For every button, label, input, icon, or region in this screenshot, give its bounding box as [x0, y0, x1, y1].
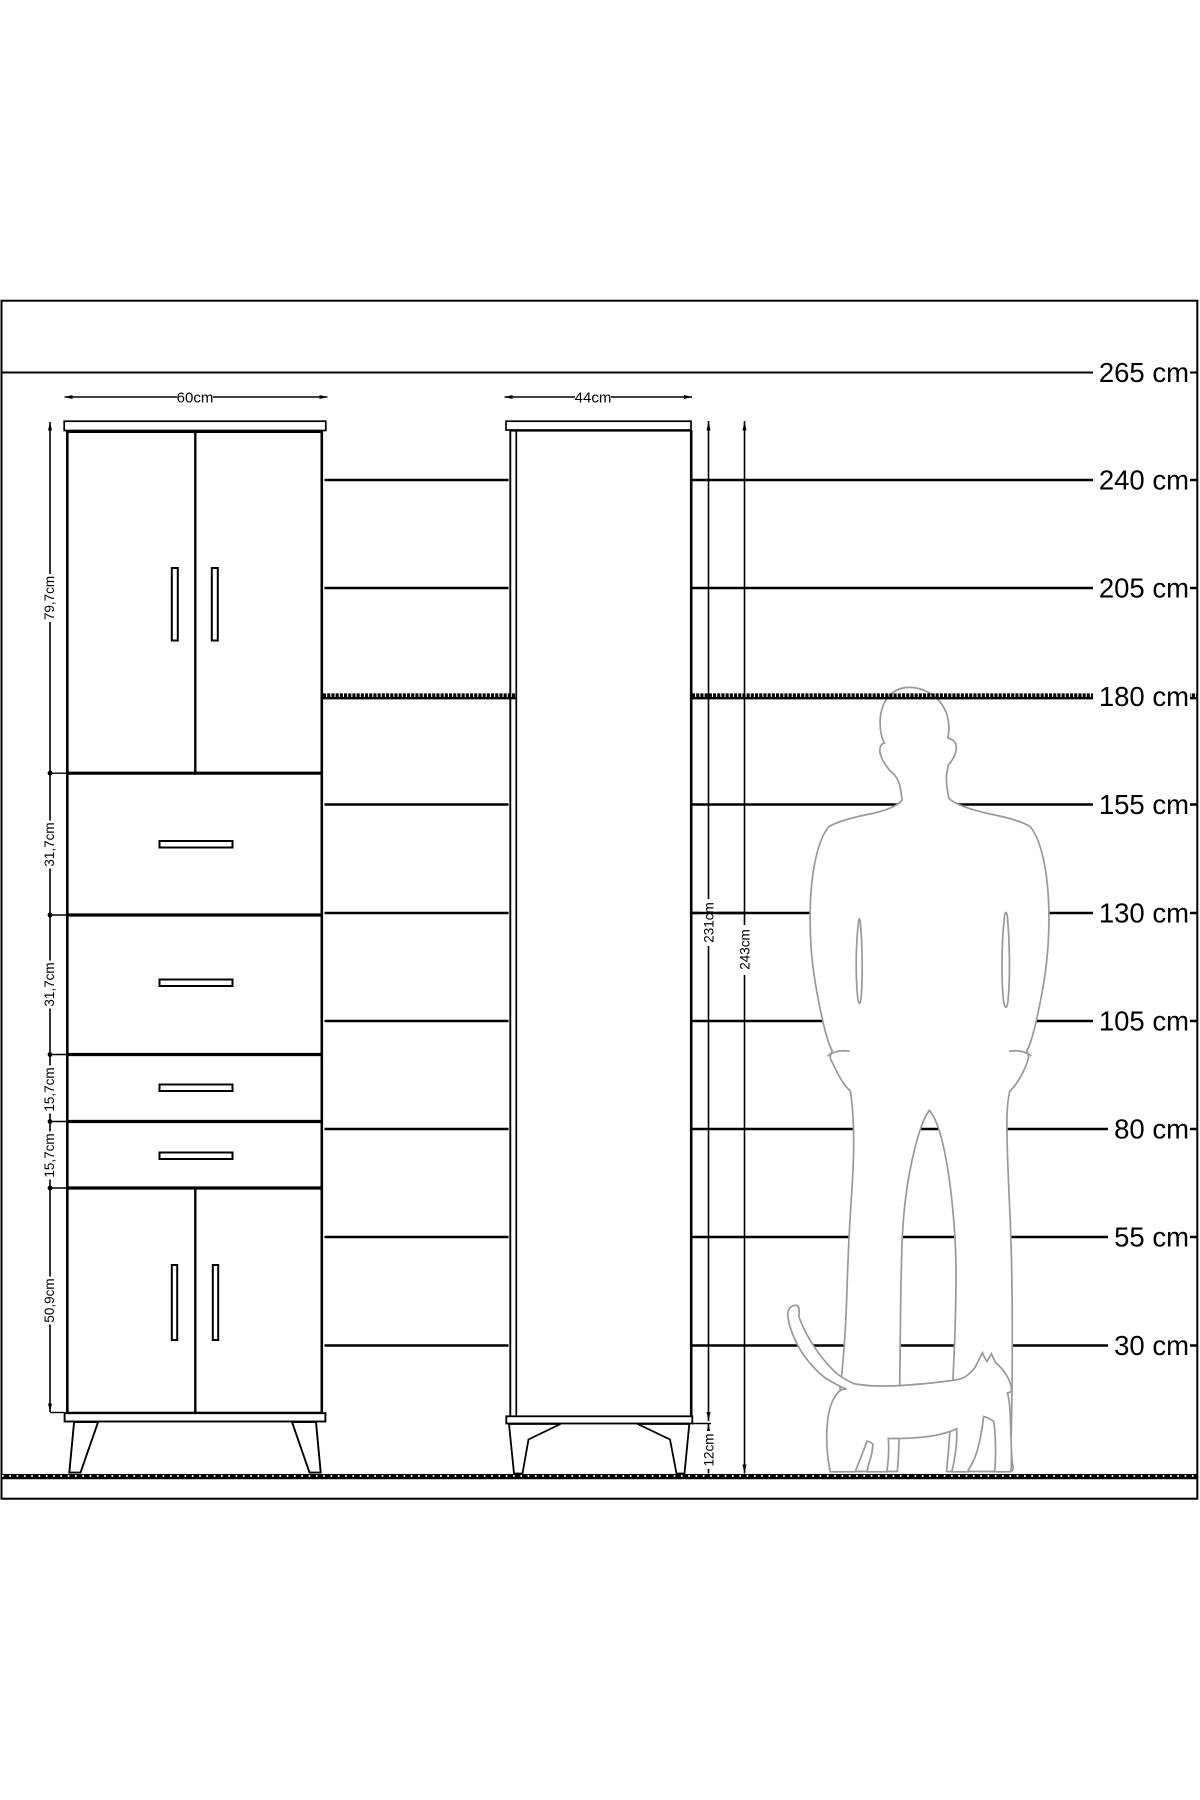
svg-text:15,7cm: 15,7cm — [42, 1067, 57, 1111]
svg-text:265 cm: 265 cm — [1099, 357, 1189, 388]
svg-text:50,9cm: 50,9cm — [42, 1278, 57, 1322]
svg-text:31,7cm: 31,7cm — [42, 822, 57, 866]
svg-text:231cm: 231cm — [702, 902, 717, 943]
svg-text:15,7cm: 15,7cm — [42, 1133, 57, 1177]
svg-text:60cm: 60cm — [177, 390, 214, 407]
svg-text:205 cm: 205 cm — [1099, 573, 1189, 604]
svg-text:80 cm: 80 cm — [1114, 1114, 1189, 1145]
svg-text:155 cm: 155 cm — [1099, 789, 1189, 820]
svg-text:30 cm: 30 cm — [1114, 1330, 1189, 1361]
svg-text:12cm: 12cm — [702, 1433, 717, 1466]
svg-text:31,7cm: 31,7cm — [42, 962, 57, 1006]
svg-text:44cm: 44cm — [575, 390, 612, 407]
svg-text:180 cm: 180 cm — [1099, 681, 1189, 712]
svg-text:79,7cm: 79,7cm — [42, 576, 57, 620]
svg-text:240 cm: 240 cm — [1099, 465, 1189, 496]
svg-text:130 cm: 130 cm — [1099, 898, 1189, 929]
svg-text:55 cm: 55 cm — [1114, 1222, 1189, 1253]
svg-text:105 cm: 105 cm — [1099, 1006, 1189, 1037]
svg-text:243cm: 243cm — [738, 929, 753, 970]
